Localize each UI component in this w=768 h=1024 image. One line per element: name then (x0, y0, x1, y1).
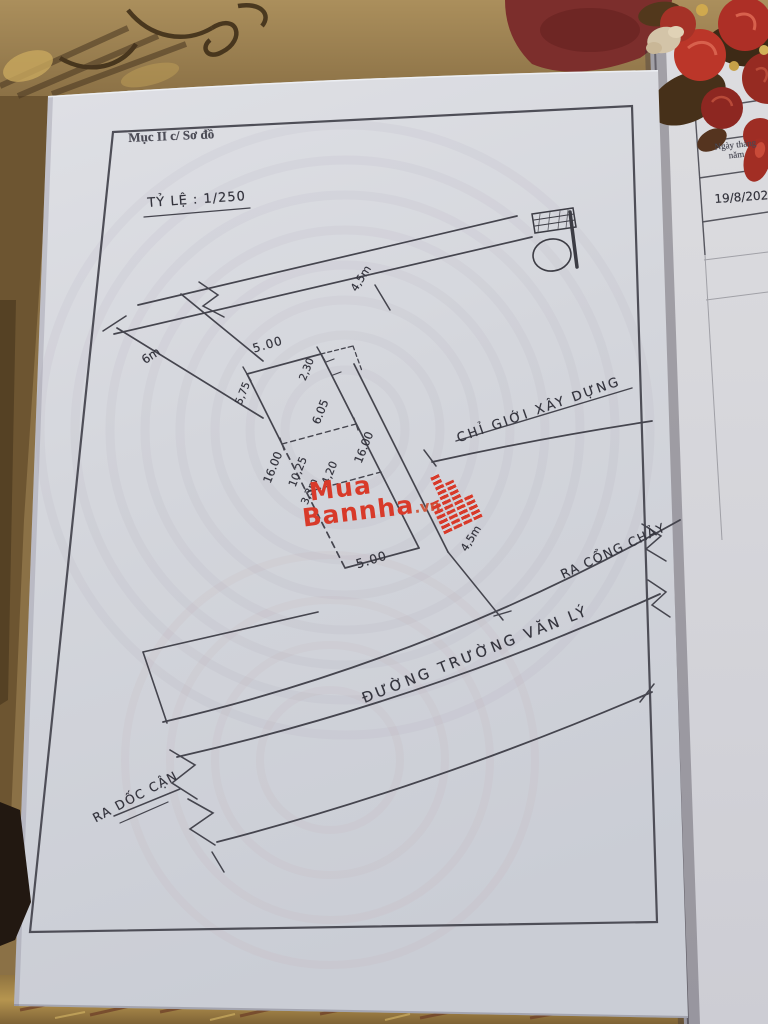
photo-of-land-sketch: Mục II c/ Sơ đồ TỶ LỆ : 1/250 4,5m 5.00 … (0, 0, 768, 1024)
